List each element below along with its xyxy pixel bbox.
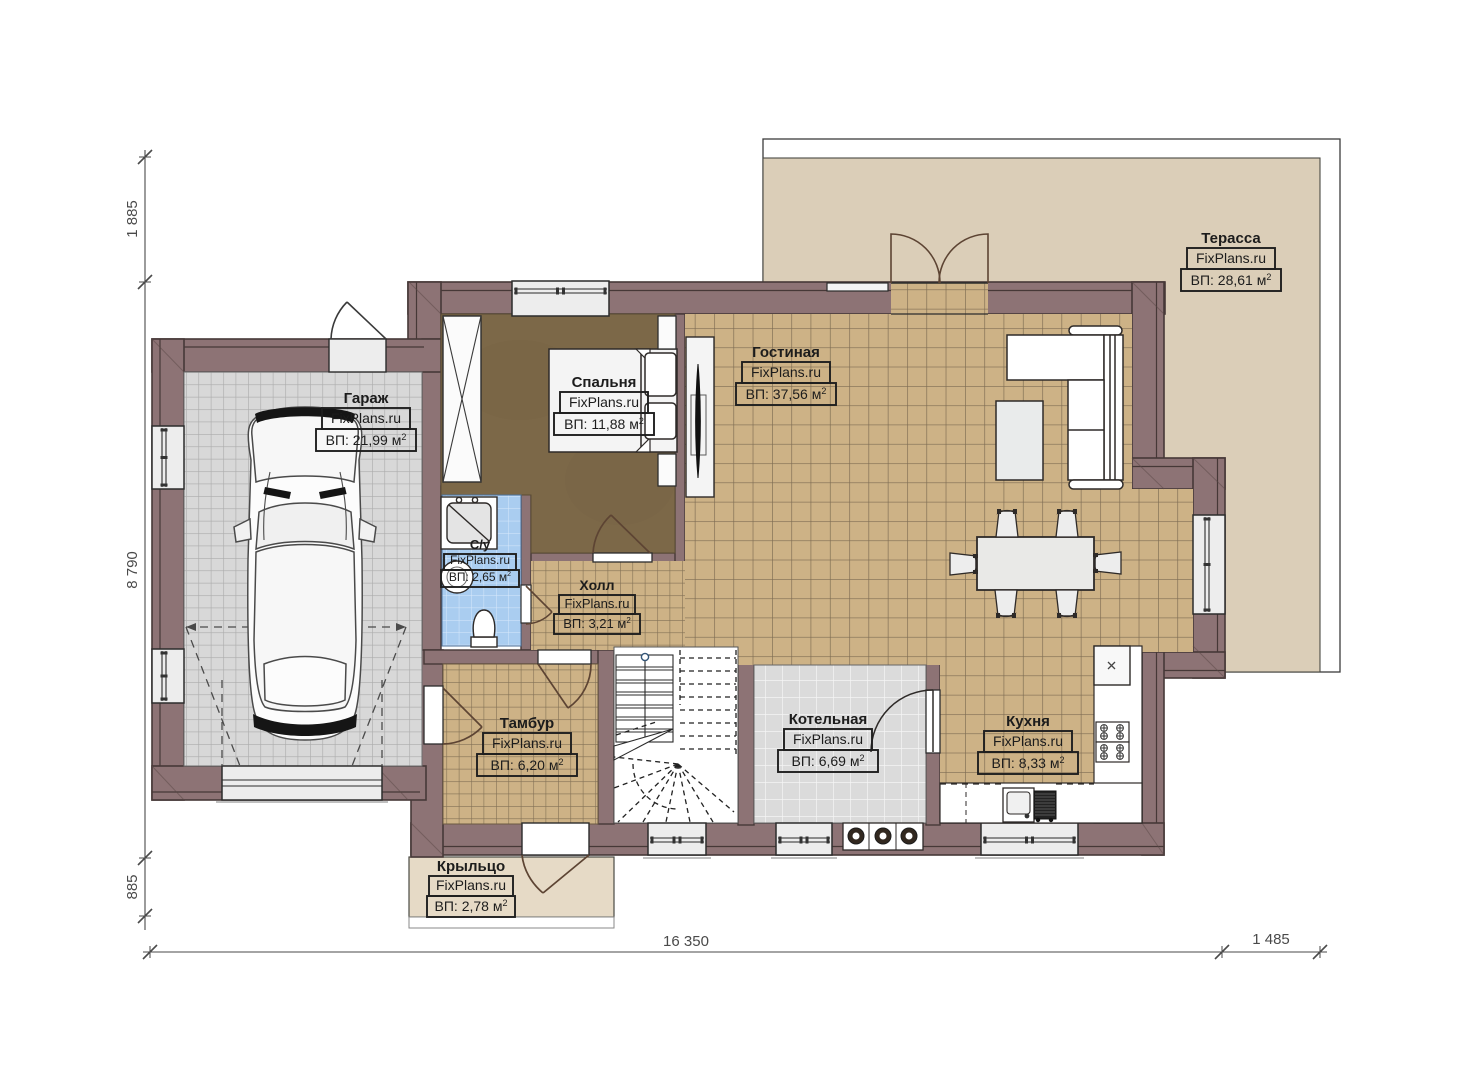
svg-text:FixPlans.ru: FixPlans.ru <box>793 731 863 747</box>
svg-text:Гостиная: Гостиная <box>752 344 820 361</box>
svg-text:ВП: 28,61 м2: ВП: 28,61 м2 <box>1191 272 1272 288</box>
svg-text:FixPlans.ru: FixPlans.ru <box>569 394 639 410</box>
svg-text:С/у: С/у <box>470 537 491 552</box>
svg-text:ВП: 21,99 м2: ВП: 21,99 м2 <box>326 432 407 448</box>
svg-text:FixPlans.ru: FixPlans.ru <box>993 733 1063 749</box>
svg-text:ВП: 8,33 м2: ВП: 8,33 м2 <box>992 755 1065 771</box>
svg-text:FixPlans.ru: FixPlans.ru <box>331 410 401 426</box>
svg-text:1 885: 1 885 <box>124 200 141 238</box>
svg-text:FixPlans.ru: FixPlans.ru <box>450 553 510 567</box>
svg-text:885: 885 <box>124 874 141 899</box>
svg-text:Котельная: Котельная <box>789 711 868 728</box>
svg-text:ВП: 6,69 м2: ВП: 6,69 м2 <box>792 753 865 769</box>
svg-text:ВП: 3,21 м2: ВП: 3,21 м2 <box>563 616 631 631</box>
svg-text:Кухня: Кухня <box>1006 713 1050 730</box>
svg-text:ВП: 2,78 м2: ВП: 2,78 м2 <box>435 898 508 914</box>
svg-text:Тамбур: Тамбур <box>500 715 554 732</box>
svg-text:Гараж: Гараж <box>344 390 389 407</box>
svg-text:Терасса: Терасса <box>1201 230 1261 247</box>
svg-text:1 485: 1 485 <box>1252 931 1290 948</box>
svg-text:8 790: 8 790 <box>124 551 141 589</box>
svg-text:FixPlans.ru: FixPlans.ru <box>564 596 629 611</box>
svg-text:FixPlans.ru: FixPlans.ru <box>751 364 821 380</box>
svg-text:Спальня: Спальня <box>572 374 637 391</box>
svg-text:ВП: 11,88 м2: ВП: 11,88 м2 <box>564 416 644 432</box>
svg-text:16 350: 16 350 <box>663 933 709 950</box>
svg-text:ВП: 2,65 м2: ВП: 2,65 м2 <box>449 570 511 584</box>
svg-text:ВП: 37,56 м2: ВП: 37,56 м2 <box>746 386 827 402</box>
svg-text:FixPlans.ru: FixPlans.ru <box>436 877 506 893</box>
svg-text:FixPlans.ru: FixPlans.ru <box>1196 250 1266 266</box>
svg-text:FixPlans.ru: FixPlans.ru <box>492 735 562 751</box>
svg-text:Холл: Холл <box>579 577 614 593</box>
svg-text:Крыльцо: Крыльцо <box>437 858 505 875</box>
svg-text:ВП: 6,20 м2: ВП: 6,20 м2 <box>491 757 564 773</box>
